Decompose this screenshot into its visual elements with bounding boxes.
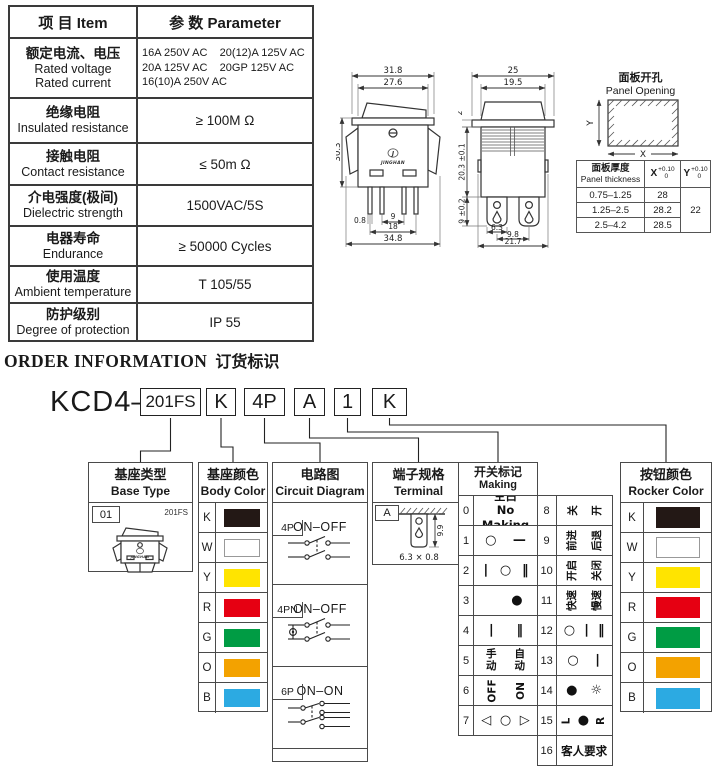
making-symbol: L [561,717,573,724]
making-row-4: 4∣‖ [459,616,537,646]
side-view-drawing: 25 19.5 2 20.3 ±0.1 9 ±0.2 6.3 [458,64,568,250]
order-code-connector-lines [0,418,715,464]
spec-parameter-cell: 16A 250V AC 20(12)A 125V AC 20A 125V AC … [137,38,313,98]
flange [472,120,554,127]
base-type-model: 201FS [164,508,188,517]
spec-parameter-cell: IP 55 [137,303,313,341]
spec-item-cell: 介电强度(极间)Dielectric strength [9,185,137,226]
color-row-r: R [621,593,711,623]
making-row-12: 12○∣‖ [538,616,612,646]
color-code: Y [199,563,216,592]
spec-item-cell: 额定电流、电压Rated voltage Rated current [9,38,137,98]
spec-table: 项 目 Item 参 数 Parameter 额定电流、电压Rated volt… [8,5,314,342]
dim-terminal-tab-height: 9.9 [436,524,445,536]
spec-header-parameter: 参 数 Parameter [137,6,313,38]
color-swatch-o [656,657,700,678]
order-code: KCD4– 201FSK4PA1K [50,386,470,420]
mounting-wing-right [428,128,440,174]
color-code: R [621,593,644,622]
dim-side-outer-width: 25 [508,66,519,76]
making-symbol: ∣ [594,653,601,668]
dim-pin-width: 0.8 [354,216,366,225]
making-symbol: — [513,533,526,548]
dim-terminal-width: 6.3 [491,223,503,232]
circuit-symbol [273,535,367,569]
making-row-14: 14●☼ [538,676,612,706]
making-row-0: 0空白 No Making [459,496,537,526]
making-symbol: 客人要求 [561,743,607,759]
color-row-o: O [621,653,711,683]
dim-flange-thickness: 2 [458,110,464,115]
color-swatch-k [656,507,700,528]
making-row-11: 11快速慢速 [538,586,612,616]
circuit-diagram-header: 电路图 Circuit Diagram [273,463,367,503]
base-type-code: 01 [92,506,120,523]
panel-y-value: 22 [681,188,711,233]
spec-item-cell: 防护级别Degree of protection [9,303,137,341]
order-code-prefix: KCD4– [50,386,149,418]
making-symbol: ‖ [517,623,524,638]
making-symbol: ∣ [583,623,590,638]
spec-item-cell: 使用温度Ambient temperature [9,266,137,303]
color-swatch-o [224,659,260,677]
spec-row: 接触电阻Contact resistance≤ 50m Ω [9,143,313,185]
body-color-table: 基座颜色 Body Color KWYRGOB [198,462,268,712]
dim-terminal-height: 9 ±0.2 [458,198,467,224]
rocker-color-header: 按钮颜色 Rocker Color [621,463,711,503]
spec-row: 介电强度(极间)Dielectric strength1500VAC/5S [9,185,313,226]
making-symbol: ∣ [482,563,489,578]
dim-front-outer-width: 31.8 [384,66,403,76]
dim-pin-gap: 9 [391,212,396,221]
dim-side-bottom-width: 21.7 [505,237,522,246]
color-row-b: B [199,683,267,713]
making-symbol: ‖ [522,563,529,578]
color-swatch-w [224,539,260,557]
terminal-pin [402,187,406,214]
terminal-drawing: 9.9 6.3 × 0.8 [373,503,466,564]
making-row-10: 10开启关闭 [538,556,612,586]
making-row-number: 0 [459,496,474,525]
color-swatch-k [224,509,260,527]
color-swatch-r [224,599,260,617]
side-clip-left [478,160,481,172]
terminal-pin [368,187,372,214]
color-code: G [621,623,644,652]
making-symbol: 后退 [589,530,604,551]
making-table: 开关标记 Making 0空白 No Making1○—2∣○‖3●4∣‖5手 … [458,462,613,765]
dim-front-height: 30.3 [336,143,343,162]
making-row-8: 8关开 [538,496,612,526]
making-symbol: ○ [500,563,511,578]
panel-y-label: Y [586,120,596,127]
hatching [608,100,678,146]
spec-row: 防护级别Degree of protectionIP 55 [9,303,313,341]
color-row-y: Y [621,563,711,593]
color-swatch-b [224,689,260,707]
color-row-k: K [621,503,711,533]
dim-pin-span: 18 [388,222,398,231]
color-swatch-g [656,627,700,648]
color-code: R [199,593,216,622]
making-row-number: 15 [538,706,557,735]
making-symbol: 慢速 [589,590,604,611]
color-code: Y [621,563,644,592]
order-segment-3: 4P [244,388,285,416]
circuit-code: 6P [273,684,303,700]
color-swatch-y [224,569,260,587]
making-symbol: ● [566,683,577,698]
spec-row: 绝缘电阻Insulated resistance≥ 100M Ω [9,98,313,143]
dim-body-height: 20.3 ±0.1 [458,143,467,181]
making-symbol: ● [578,713,589,728]
making-row-3: 3● [459,586,537,616]
making-rows-0-7: 0空白 No Making1○—2∣○‖3●4∣‖5手 动自 动6OFFON7◁… [458,495,538,736]
order-segment-6: K [372,388,407,416]
order-information-heading: ORDER INFORMATION 订货标识 [4,348,279,372]
making-symbol: 前进 [564,530,579,551]
color-row-g: G [199,623,267,653]
making-symbol: 手 动 [486,649,497,672]
dim-front-inner-width: 27.6 [384,78,403,88]
body-color-header: 基座颜色 Body Color [199,463,267,503]
color-row-k: K [199,503,267,533]
bezel [352,118,434,125]
making-row-1: 1○— [459,526,537,556]
making-symbol: ○ [485,533,496,548]
datasheet-page: 项 目 Item 参 数 Parameter 额定电流、电压Rated volt… [0,0,715,766]
making-row-number: 12 [538,616,557,645]
making-row-5: 5手 动自 动 [459,646,537,676]
order-segment-2: K [206,388,236,416]
spec-parameter-cell: ≥ 100M Ω [137,98,313,143]
making-row-number: 14 [538,676,557,705]
making-row-number: 9 [538,526,557,555]
color-code: W [621,533,644,562]
making-row-number: 1 [459,526,474,555]
circuit-row-4pn: 4PNON–OFF [273,602,367,667]
color-code: O [199,653,216,682]
circuit-symbol [273,617,367,651]
base-type-switch-drawing: JINGHAN [108,523,172,573]
order-segment-5: 1 [334,388,361,416]
making-row-7: 7◁○▷ [459,706,537,735]
making-row-number: 11 [538,586,557,615]
making-symbol: ● [511,593,522,608]
color-code: G [199,623,216,652]
making-rows-8-16: 8关开9前进后退10开启关闭11快速慢速12○∣‖13○∣14●☼15L●R16… [537,495,613,766]
terminal-header: 端子规格 Terminal [373,463,464,503]
making-symbol: 关 [564,505,579,516]
circuit-code: 4PN [273,602,303,618]
making-symbol: ON [515,682,527,700]
base-type-header: 基座类型 Base Type [89,463,192,503]
making-row-2: 2∣○‖ [459,556,537,586]
mounting-wing-left [346,128,358,174]
color-swatch-y [656,567,700,588]
terminal-pin [380,187,384,214]
making-header: 开关标记 Making [458,462,538,496]
spec-row: 使用温度Ambient temperatureT 105/55 [9,266,313,303]
making-symbol: ▷ [520,713,530,728]
color-swatch-g [224,629,260,647]
making-symbol: 快速 [564,590,579,611]
circuit-row-6p: 6PON–ON [273,684,367,749]
circuit-diagram-table: 电路图 Circuit Diagram 4PON–OFF4PNON–OFF6PO… [272,462,368,762]
making-symbol: ○ [564,623,575,638]
brand-logo-text: JINGHAN [380,160,405,166]
color-row-y: Y [199,563,267,593]
spec-parameter-cell: T 105/55 [137,266,313,303]
making-symbol: ○ [500,713,511,728]
making-row-6: 6OFFON [459,676,537,706]
making-symbol: OFF [487,679,499,702]
color-row-w: W [199,533,267,563]
making-row-number: 3 [459,586,474,615]
spec-item-cell: 绝缘电阻Insulated resistance [9,98,137,143]
order-segment-1: 201FS [140,388,201,416]
circuit-row-4p: 4PON–OFF [273,520,367,585]
making-symbol: ◁ [481,713,491,728]
making-symbol: 空白 No Making [477,496,534,525]
making-row-number: 8 [538,496,557,525]
switch-body-side [481,127,545,197]
making-row-number: 16 [538,736,557,765]
spec-item-cell: 接触电阻Contact resistance [9,143,137,185]
making-symbol: R [595,716,607,724]
panel-y-tolerance-header: Y+0.100 [681,161,711,188]
panel-x-label: X [640,150,646,160]
color-swatch-b [656,688,700,709]
color-row-g: G [621,623,711,653]
spec-header-item: 项 目 Item [9,6,137,38]
making-symbol: ∣ [488,623,495,638]
side-clip-right [545,160,548,172]
panel-thickness-header: 面板厚度 Panel thickness [577,161,645,188]
circuit-code: 4P [273,520,303,536]
terminal-pin [414,187,418,214]
color-row-o: O [199,653,267,683]
making-row-number: 13 [538,646,557,675]
making-row-15: 15L●R [538,706,612,736]
making-row-number: 7 [459,706,474,735]
making-row-number: 4 [459,616,474,645]
base-type-table: 基座类型 Base Type 01 201FS JINGHAN [88,462,193,572]
color-swatch-w [656,537,700,558]
color-code: K [199,503,216,532]
making-row-number: 5 [459,646,474,675]
making-symbol: ☼ [590,683,602,698]
making-symbol: ○ [567,653,578,668]
making-row-9: 9前进后退 [538,526,612,556]
color-code: O [621,653,644,682]
color-row-r: R [199,593,267,623]
color-code: B [621,683,644,713]
panel-opening-drawing: Y X [578,96,703,166]
making-symbol: 开 [589,505,604,516]
rocker-cap [481,102,545,120]
color-swatch-r [656,597,700,618]
spec-parameter-cell: 1500VAC/5S [137,185,313,226]
base-type-body: 01 201FS JINGHAN [89,503,192,571]
making-row-16: 16客人要求 [538,736,612,765]
spec-parameter-cell: ≤ 50m Ω [137,143,313,185]
dim-terminal-tab-size: 6.3 × 0.8 [399,553,439,563]
making-symbol: ‖ [598,623,605,638]
color-code: W [199,533,216,562]
spec-item-cell: 电器寿命Endurance [9,226,137,266]
color-row-w: W [621,533,711,563]
spec-parameter-cell: ≥ 50000 Cycles [137,226,313,266]
making-row-number: 10 [538,556,557,585]
making-row-number: 2 [459,556,474,585]
panel-opening-title: 面板开孔 Panel Opening [578,72,703,97]
making-symbol: 自 动 [515,649,526,672]
color-code: B [199,683,216,713]
terminal-table: 端子规格 Terminal A 9.9 6.3 × 0.8 [372,462,465,565]
spec-row: 额定电流、电压Rated voltage Rated current16A 25… [9,38,313,98]
panel-thickness-table: 面板厚度 Panel thickness X+0.100 Y+0.100 0.7… [576,160,711,233]
front-view-drawing: 31.8 27.6 J JINGHAN 30.3 0.8 9 18 34.8 [336,64,450,250]
rocker-color-table: 按钮颜色 Rocker Color KWYRGOB [620,462,712,712]
making-row-number: 6 [459,676,474,705]
making-symbol: 开启 [564,560,579,581]
color-row-b: B [621,683,711,713]
making-row-13: 13○∣ [538,646,612,676]
making-symbol: 关闭 [589,560,604,581]
circuit-symbol [273,699,367,735]
rocker-actuator [362,103,426,118]
spec-row: 电器寿命Endurance≥ 50000 Cycles [9,226,313,266]
terminal-body: A 9.9 6.3 × 0.8 [373,503,464,564]
dim-front-total-width: 34.8 [384,234,403,244]
panel-x-tolerance-header: X+0.100 [645,161,681,188]
color-code: K [621,503,644,532]
dim-side-inner-width: 19.5 [504,78,523,88]
panel-thickness-row: 0.75–1.252822 [577,188,711,203]
order-segment-4: A [294,388,325,416]
